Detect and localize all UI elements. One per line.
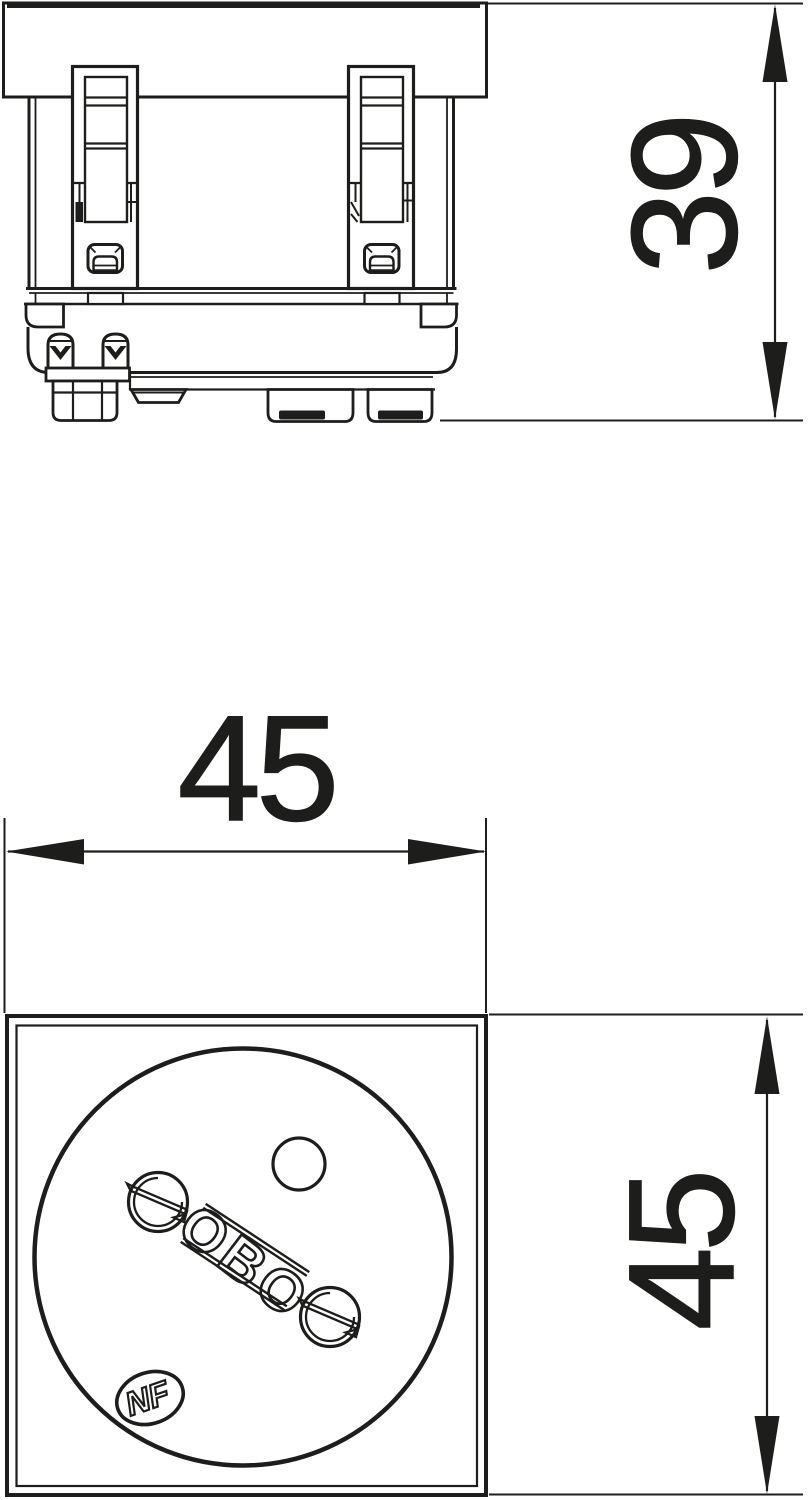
side-view <box>4 2 487 422</box>
arrowhead-down <box>763 342 788 420</box>
dimension-drawing: 39 45 <box>0 0 808 1500</box>
nf-certification-mark: NF <box>110 1363 191 1433</box>
arrowhead-left <box>6 839 84 865</box>
live-contact-hole <box>127 1173 188 1232</box>
obo-logo-text: OBO <box>167 1192 323 1333</box>
mounting-claw-right <box>349 67 414 289</box>
dimension-45-height: 45 <box>489 1015 803 1495</box>
bottom-foot-1 <box>53 381 117 421</box>
terminal-screw-left <box>48 334 73 368</box>
front-view: OBO NF <box>7 1016 486 1495</box>
claw-latch-mark <box>76 202 84 222</box>
bottom-foot-4 <box>368 390 432 422</box>
earth-pin-hole <box>273 1138 325 1190</box>
plate-top-lip <box>7 2 480 9</box>
bottom-foot-2 <box>131 390 186 403</box>
terminal-screw-right <box>103 334 128 368</box>
lower-housing <box>26 304 457 422</box>
dimension-39: 39 <box>440 4 803 421</box>
mounting-claw-left <box>73 67 138 289</box>
arrowhead-up <box>763 5 788 83</box>
housing-step-right <box>421 304 457 327</box>
arrowhead-right <box>408 839 486 865</box>
body-flange <box>24 289 459 305</box>
dimension-45-width-label: 45 <box>178 684 335 852</box>
arrowhead-up <box>755 1017 780 1095</box>
technical-drawing-page: 39 45 <box>0 0 808 1500</box>
dimension-39-label: 39 <box>600 118 768 275</box>
dimension-45-height-label: 45 <box>597 1174 765 1331</box>
arrowhead-down <box>755 1416 780 1494</box>
obo-brand-mark: OBO <box>167 1192 323 1333</box>
housing-step-left <box>26 304 64 327</box>
dimension-45-width: 45 <box>5 684 487 1013</box>
bottom-foot-3 <box>268 390 353 422</box>
terminal-block <box>46 368 130 381</box>
